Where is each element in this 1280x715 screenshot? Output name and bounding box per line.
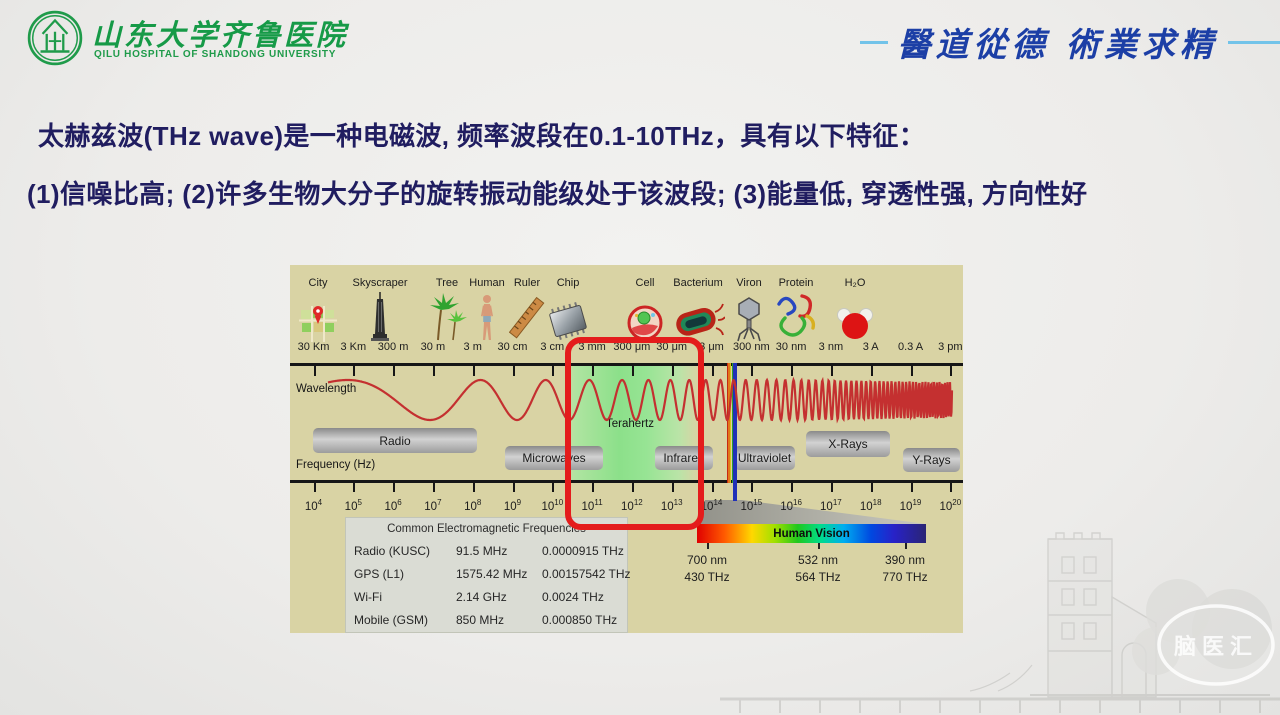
tick-mark-top — [353, 365, 355, 376]
motto-left-dash — [860, 41, 888, 44]
hospital-logo-icon — [26, 9, 84, 72]
object-label: Viron — [736, 277, 761, 289]
brainmed-badge: 脑医汇 — [1159, 606, 1273, 684]
object-label: Chip — [557, 277, 580, 289]
tick-mark-top — [314, 365, 316, 376]
wavelength-tick-label: 300 nm — [733, 341, 770, 353]
frequency-tick-label: 107 — [424, 498, 441, 513]
tick-mark-bottom — [950, 481, 952, 492]
ruler-icon — [509, 292, 545, 342]
tick-mark-bottom — [751, 481, 753, 492]
band-bar-y-rays: Y-Rays — [903, 448, 960, 472]
vision-mark-label: 390 nm770 THz — [882, 552, 927, 586]
tick-mark-top — [552, 365, 554, 376]
wavelength-tick-label: 0.3 A — [898, 341, 923, 353]
frequency-tick-label: 1019 — [900, 498, 922, 513]
frequency-axis-label: Frequency (Hz) — [296, 459, 375, 471]
frequency-tick-label: 1010 — [541, 498, 563, 513]
intro-text-line-1: 太赫兹波(THz wave)是一种电磁波, 频率波段在0.1-10THz，具有以… — [38, 116, 925, 153]
vision-mark-label: 532 nm564 THz — [795, 552, 840, 586]
wavelength-tick-label: 3 Km — [340, 341, 366, 353]
hospital-name-cn: 山东大学齐鲁医院 — [92, 12, 348, 54]
table-cell: 0.0000915 THz — [542, 544, 624, 558]
object-label: Cell — [636, 277, 655, 289]
cell-icon — [626, 292, 664, 342]
table-cell: 2.14 GHz — [456, 590, 507, 604]
bacterium-icon — [671, 292, 725, 342]
hospital-name-en: QILU HOSPITAL OF SHANDONG UNIVERSITY — [94, 49, 336, 60]
table-cell: 0.000850 THz — [542, 613, 617, 627]
tick-mark-top — [791, 365, 793, 376]
common-frequencies-table: Common Electromagnetic Frequencies Radio… — [345, 517, 628, 633]
human-vision-bar: Human Vision — [697, 524, 926, 543]
tick-mark-top — [950, 365, 952, 376]
tick-mark-top — [513, 365, 515, 376]
table-cell: 0.00157542 THz — [542, 567, 631, 581]
frequency-tick-label: 104 — [305, 498, 322, 513]
table-cell: Radio (KUSC) — [354, 544, 430, 558]
tick-mark-bottom — [911, 481, 913, 492]
human-vision-label: Human Vision — [773, 528, 849, 540]
frequency-tick-label: 109 — [504, 498, 521, 513]
wavelength-tick-label: 3 pm — [938, 341, 962, 353]
tick-mark-bottom — [513, 481, 515, 492]
vision-mark-label: 700 nm430 THz — [684, 552, 729, 586]
wavelength-tick-label: 30 cm — [498, 341, 528, 353]
wavelength-tick-label: 30 nm — [776, 341, 807, 353]
frequency-tick-label: 1020 — [939, 498, 961, 513]
water-molecule-icon — [835, 292, 875, 342]
tick-mark-top — [473, 365, 475, 376]
tick-mark-top — [433, 365, 435, 376]
chip-icon — [545, 292, 591, 342]
wavelength-tick-label: 3 A — [863, 341, 879, 353]
tick-mark-bottom — [433, 481, 435, 492]
table-cell: 1575.42 MHz — [456, 567, 527, 581]
object-label: Skyscraper — [352, 277, 407, 289]
intro-text-line-2: (1)信噪比高; (2)许多生物大分子的旋转振动能级处于该波段; (3)能量低,… — [27, 174, 1087, 211]
object-label: Human — [469, 277, 504, 289]
vision-beam-trapezoid — [690, 496, 930, 526]
wavelength-tick-label: 3 cm — [540, 341, 564, 353]
frequency-tick-label: 1015 — [740, 498, 762, 513]
table-cell: 0.0024 THz — [542, 590, 604, 604]
table-cell: 850 MHz — [456, 613, 504, 627]
tick-mark-top — [871, 365, 873, 376]
tick-mark-bottom — [353, 481, 355, 492]
object-label: City — [309, 277, 328, 289]
tick-mark-bottom — [314, 481, 316, 492]
band-bar-x-rays: X-Rays — [806, 431, 890, 457]
motto-calligraphy: 醫道從德 術業求精 — [860, 18, 1280, 66]
frequency-tick-label: 1016 — [780, 498, 802, 513]
skyscraper-icon — [370, 292, 390, 342]
table-cell: 91.5 MHz — [456, 544, 507, 558]
city-icon — [299, 292, 337, 342]
table-cell: Wi-Fi — [354, 590, 382, 604]
frequency-tick-label: 1017 — [820, 498, 842, 513]
terahertz-highlight-box — [565, 337, 704, 530]
vision-tick — [905, 543, 907, 549]
visible-light-line — [733, 363, 737, 501]
wavelength-tick-label: 3 nm — [819, 341, 843, 353]
badge-text: 脑医汇 — [1174, 634, 1258, 659]
band-bar-ultraviolet: Ultraviolet — [734, 446, 795, 470]
object-label: Protein — [779, 277, 814, 289]
frequency-tick-label: 105 — [345, 498, 362, 513]
wavelength-axis-label: Wavelength — [296, 383, 356, 395]
table-cell: GPS (L1) — [354, 567, 404, 581]
tick-mark-top — [712, 365, 714, 376]
object-label: H₂O — [845, 277, 866, 289]
motto-right-dash — [1228, 41, 1280, 44]
wavelength-tick-label: 300 m — [378, 341, 409, 353]
tick-mark-bottom — [831, 481, 833, 492]
tree-icon — [427, 292, 467, 342]
wavelength-tick-label: 30 m — [421, 341, 445, 353]
frequency-tick-label: 106 — [384, 498, 401, 513]
tick-mark-bottom — [712, 481, 714, 492]
tick-mark-bottom — [791, 481, 793, 492]
protein-icon — [771, 292, 821, 342]
tick-mark-top — [751, 365, 753, 376]
wavelength-tick-label: 30 Km — [298, 341, 330, 353]
object-label: Ruler — [514, 277, 540, 289]
wavelength-tick-label: 3 m — [464, 341, 482, 353]
tick-mark-bottom — [393, 481, 395, 492]
motto-text: 醫道從德 術業求精 — [898, 18, 1219, 66]
human-icon — [479, 292, 495, 342]
vision-tick — [818, 543, 820, 549]
band-bar-radio: Radio — [313, 428, 477, 453]
frequency-tick-label: 108 — [464, 498, 481, 513]
slide: 山东大学齐鲁医院 QILU HOSPITAL OF SHANDONG UNIVE… — [0, 0, 1280, 715]
vision-tick — [707, 543, 709, 549]
frequency-tick-label: 1018 — [860, 498, 882, 513]
object-label: Tree — [436, 277, 458, 289]
table-cell: Mobile (GSM) — [354, 613, 428, 627]
tick-mark-bottom — [871, 481, 873, 492]
viron-icon — [732, 292, 766, 342]
tick-mark-top — [911, 365, 913, 376]
tick-mark-top — [393, 365, 395, 376]
tick-mark-bottom — [552, 481, 554, 492]
tick-mark-top — [831, 365, 833, 376]
object-label: Bacterium — [673, 277, 723, 289]
tick-mark-bottom — [473, 481, 475, 492]
